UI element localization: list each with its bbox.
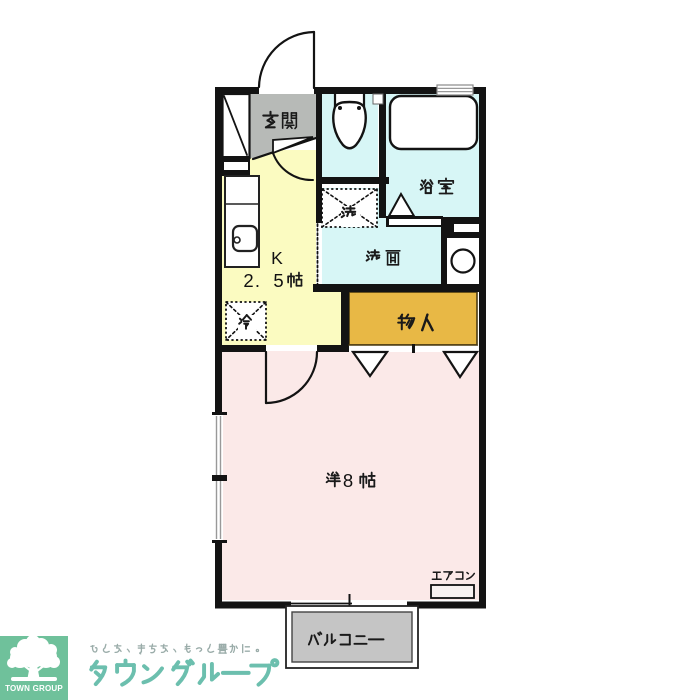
svg-text:2: 2 [243,270,253,291]
svg-text:K: K [271,248,283,268]
svg-text:8: 8 [343,470,353,491]
svg-text:5: 5 [273,270,283,291]
svg-text:.: . [255,270,260,291]
svg-text:TOWN GROUP: TOWN GROUP [5,684,63,693]
